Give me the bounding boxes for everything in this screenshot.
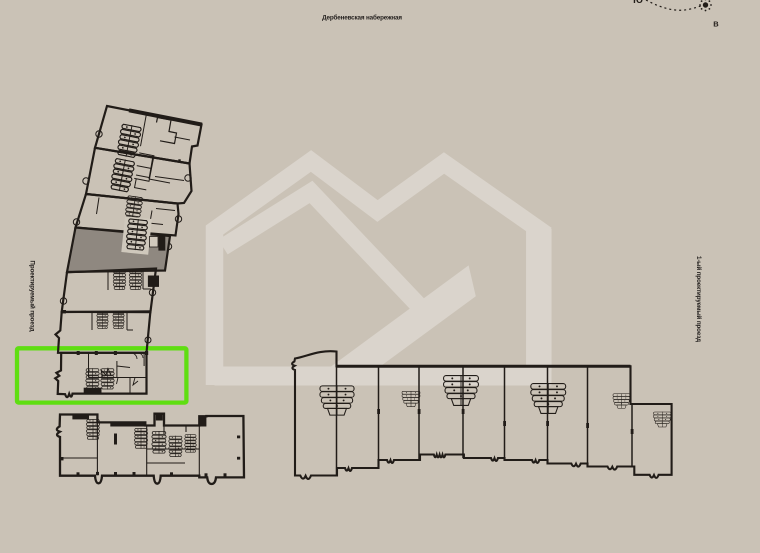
svg-text:Проектируемый проезд: Проектируемый проезд [29,261,36,332]
svg-text:1-ый проектируемый проезд: 1-ый проектируемый проезд [695,256,702,342]
svg-text:Ю: Ю [633,0,643,6]
svg-text:В: В [713,20,719,29]
svg-text:Дербеневская набережная: Дербеневская набережная [322,14,402,22]
